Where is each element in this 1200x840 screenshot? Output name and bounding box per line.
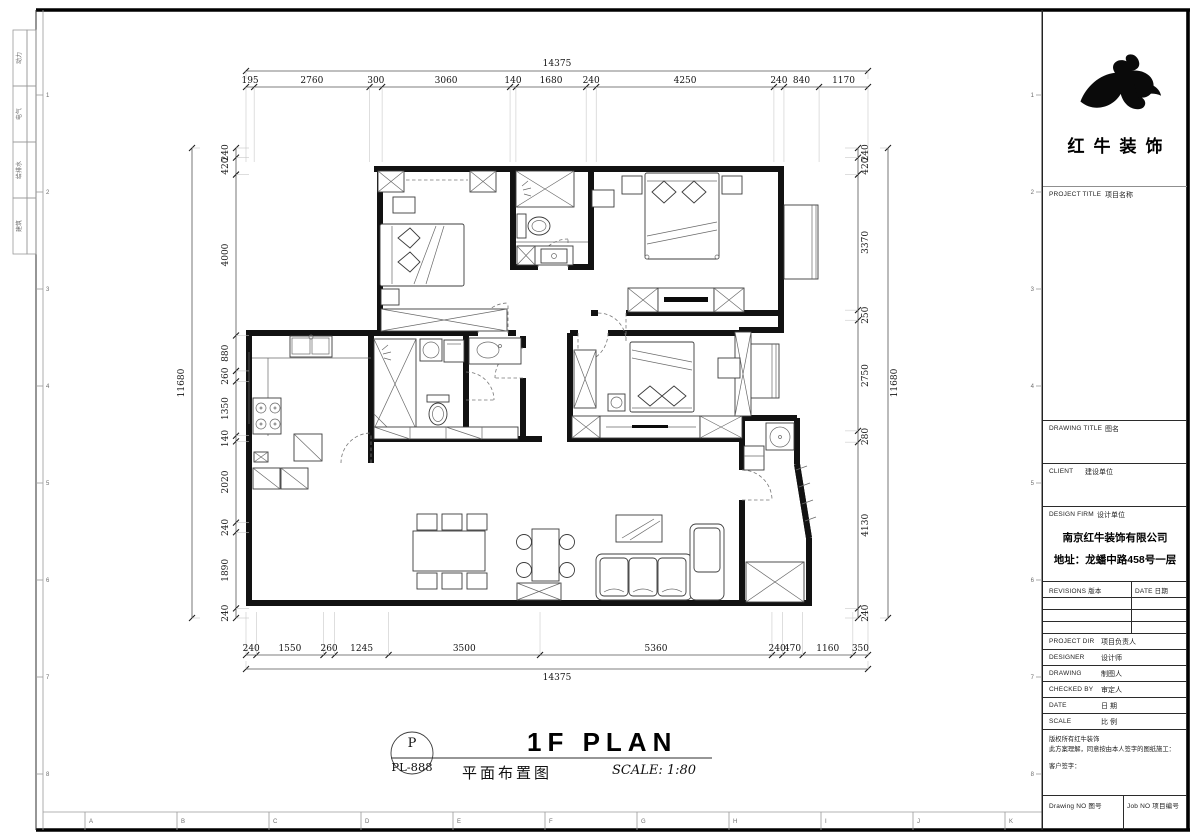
row-project-dir-cn: 项目负责人 [1101, 637, 1136, 647]
signoff-strip: 动力电气给排水建筑 [13, 30, 36, 254]
svg-text:14375: 14375 [543, 59, 572, 69]
revisions-label: REVISIONS 版本 [1049, 585, 1102, 595]
svg-text:350: 350 [852, 644, 869, 654]
cabinet-kitchen-small [254, 452, 268, 462]
toilet-icon-bathroom2 [427, 395, 449, 425]
job-no-label: Job NO 项目编号 [1127, 800, 1179, 810]
svg-text:I: I [825, 819, 827, 825]
design-firm-label-en: DESIGN FIRM [1049, 511, 1094, 518]
svg-text:K: K [1009, 819, 1013, 825]
row-scale-en: SCALE [1049, 718, 1071, 725]
vanity-bathroom2-right [469, 338, 521, 364]
drawing-tag-number: PL-888 [390, 760, 434, 774]
wardrobe-bedroom1 [381, 309, 507, 331]
svg-text:1170: 1170 [832, 76, 855, 86]
side-table-bedroom2 [718, 358, 740, 378]
shoe-cabinet-entry [746, 562, 804, 602]
svg-text:1680: 1680 [540, 76, 563, 86]
tea-table-icon [517, 529, 575, 581]
shoe-cabinet-bathroom2 [374, 427, 518, 439]
drawing-tag-letter: P [390, 736, 434, 751]
svg-text:420: 420 [221, 157, 231, 174]
svg-text:470: 470 [784, 644, 801, 654]
svg-text:1160: 1160 [816, 644, 839, 654]
nightstand-master-left [622, 176, 642, 194]
bed-icon-bedroom1 [380, 224, 464, 286]
drawing-sheet: 动力电气给排水建筑 ABCDEFGHIJK1122334455667788 [0, 0, 1200, 840]
svg-text:5: 5 [46, 481, 50, 487]
svg-text:4000: 4000 [221, 243, 231, 266]
svg-text:240: 240 [861, 604, 871, 621]
company-brand-name: 红牛装饰 [1043, 132, 1187, 157]
dining-table-icon [413, 514, 487, 589]
row-project-dir-en: PROJECT DIR [1049, 638, 1094, 645]
svg-text:1: 1 [1031, 93, 1035, 99]
svg-text:240: 240 [583, 76, 600, 86]
tea-table-cabinet [517, 583, 561, 600]
row-drawing-cn: 制图人 [1101, 669, 1122, 679]
title-block: 红牛装饰 PROJECT TITLE 项目名称 DRAWING TITLE 图名… [1042, 10, 1187, 830]
project-title-label-cn: 项目名称 [1105, 190, 1133, 200]
fridge-icon [294, 434, 322, 461]
vanity-bathroom1 [517, 246, 573, 265]
row-checked-by-en: CHECKED BY [1049, 686, 1093, 693]
svg-text:140: 140 [221, 430, 231, 447]
svg-text:E: E [457, 819, 461, 825]
svg-text:4: 4 [1031, 384, 1035, 390]
svg-text:F: F [549, 819, 553, 825]
svg-text:4130: 4130 [861, 514, 871, 537]
desk-bedroom1 [393, 197, 415, 213]
svg-text:4: 4 [46, 384, 50, 390]
svg-text:260: 260 [221, 367, 231, 384]
basin-bathroom2 [444, 340, 464, 362]
svg-text:7: 7 [46, 675, 50, 681]
company-name: 南京红牛装饰有限公司 [1043, 530, 1187, 545]
row-date-en: DATE [1049, 702, 1067, 709]
svg-text:2: 2 [46, 190, 50, 196]
washing-machine-entry [766, 423, 794, 450]
svg-text:840: 840 [793, 76, 810, 86]
bed-icon-master [645, 173, 719, 259]
svg-text:300: 300 [367, 76, 384, 86]
svg-text:8: 8 [46, 772, 50, 778]
svg-text:5360: 5360 [645, 644, 668, 654]
svg-text:1: 1 [46, 93, 50, 99]
company-address: 地址：龙蟠中路458号一层 [1043, 552, 1187, 567]
svg-text:6: 6 [1031, 578, 1035, 584]
svg-text:3: 3 [46, 287, 50, 293]
svg-text:J: J [917, 819, 920, 825]
svg-text:1890: 1890 [221, 559, 231, 582]
row-checked-by-cn: 审定人 [1101, 685, 1122, 695]
svg-text:14375: 14375 [543, 673, 572, 683]
client-label-cn: 建设单位 [1085, 467, 1113, 477]
fan-bedroom2 [608, 394, 625, 411]
floor-plan-canvas: 动力电气给排水建筑 ABCDEFGHIJK1122334455667788 [0, 0, 1200, 840]
svg-text:3060: 3060 [435, 76, 458, 86]
row-designer-cn: 设计师 [1101, 653, 1122, 663]
company-logo [1067, 50, 1163, 130]
svg-text:195: 195 [241, 76, 258, 86]
bed-icon-bedroom2 [630, 342, 694, 412]
wardrobe-bedroom2-bottom [572, 416, 742, 438]
svg-text:1350: 1350 [221, 397, 231, 420]
stove-icon [253, 358, 281, 436]
wardrobe-bedroom2-left [574, 350, 596, 408]
bay-window-master [784, 205, 818, 279]
svg-text:880: 880 [221, 344, 231, 361]
svg-text:240: 240 [221, 604, 231, 621]
drawing-no-label: Drawing NO 图号 [1049, 800, 1102, 810]
svg-text:建筑: 建筑 [15, 220, 23, 232]
svg-text:3370: 3370 [861, 231, 871, 254]
copyright-line-1: 版权所有红牛装饰 [1049, 735, 1181, 745]
svg-text:B: B [181, 819, 185, 825]
svg-text:3: 3 [1031, 287, 1035, 293]
svg-text:6: 6 [46, 578, 50, 584]
svg-text:G: G [641, 819, 646, 825]
svg-text:2: 2 [1031, 190, 1035, 196]
svg-text:2760: 2760 [300, 76, 323, 86]
svg-text:11680: 11680 [177, 368, 187, 397]
desk-master [592, 190, 614, 207]
date-column-label: DATE 日期 [1135, 585, 1168, 595]
cabinet-entry [744, 446, 764, 470]
customer-signature-label: 客户签字： [1049, 762, 1181, 772]
svg-text:11680: 11680 [890, 368, 900, 397]
shower-bathroom2 [374, 339, 416, 429]
project-title-label-en: PROJECT TITLE [1049, 191, 1101, 198]
window-bench [253, 468, 308, 489]
row-scale-cn: 比 例 [1101, 717, 1117, 727]
svg-text:7: 7 [1031, 675, 1035, 681]
svg-text:250: 250 [861, 306, 871, 323]
svg-text:240: 240 [770, 76, 787, 86]
plan-scale-note: SCALE: 1:80 [612, 763, 696, 778]
svg-text:5: 5 [1031, 481, 1035, 487]
svg-text:280: 280 [861, 428, 871, 445]
wardrobe-master [628, 288, 744, 312]
svg-text:1245: 1245 [350, 644, 373, 654]
svg-text:D: D [365, 819, 370, 825]
nightstand-bedroom1 [381, 289, 399, 305]
svg-text:140: 140 [504, 76, 521, 86]
svg-text:A: A [89, 819, 93, 825]
drawing-title-label-en: DRAWING TITLE [1049, 425, 1102, 432]
copyright-line-2: 此方案理解，同意按由本人签字的图纸施工： [1049, 745, 1183, 755]
closet-bedroom1-top [378, 171, 496, 192]
kitchen-sink [252, 335, 371, 358]
svg-text:420: 420 [861, 157, 871, 174]
svg-text:4250: 4250 [674, 76, 697, 86]
svg-text:3500: 3500 [453, 644, 476, 654]
row-designer-en: DESIGNER [1049, 654, 1085, 661]
svg-text:H: H [733, 819, 737, 825]
svg-text:1550: 1550 [278, 644, 301, 654]
svg-text:给排水: 给排水 [15, 161, 23, 179]
toilet-icon-bathroom1 [516, 214, 588, 242]
client-label-en: CLIENT [1049, 468, 1073, 475]
row-drawing-en: DRAWING [1049, 670, 1082, 677]
svg-text:动力: 动力 [15, 52, 23, 64]
plan-title-cn: 平面布置图 [462, 762, 552, 783]
shower-bathroom1 [516, 171, 574, 207]
svg-text:2750: 2750 [861, 364, 871, 387]
svg-text:240: 240 [243, 644, 260, 654]
svg-text:260: 260 [320, 644, 337, 654]
nightstand-master-right [722, 176, 742, 194]
svg-text:8: 8 [1031, 772, 1035, 778]
row-date-cn: 日 期 [1101, 701, 1117, 711]
design-firm-label-cn: 设计单位 [1097, 510, 1125, 520]
svg-text:电气: 电气 [15, 108, 23, 120]
plan-title-en: 1F PLAN [527, 727, 677, 758]
tv-icon [616, 515, 662, 542]
drawing-title-label-cn: 图名 [1105, 424, 1119, 434]
svg-text:2020: 2020 [221, 470, 231, 493]
svg-text:C: C [273, 819, 278, 825]
washing-machine-bathroom2 [420, 339, 442, 361]
svg-text:240: 240 [221, 519, 231, 536]
